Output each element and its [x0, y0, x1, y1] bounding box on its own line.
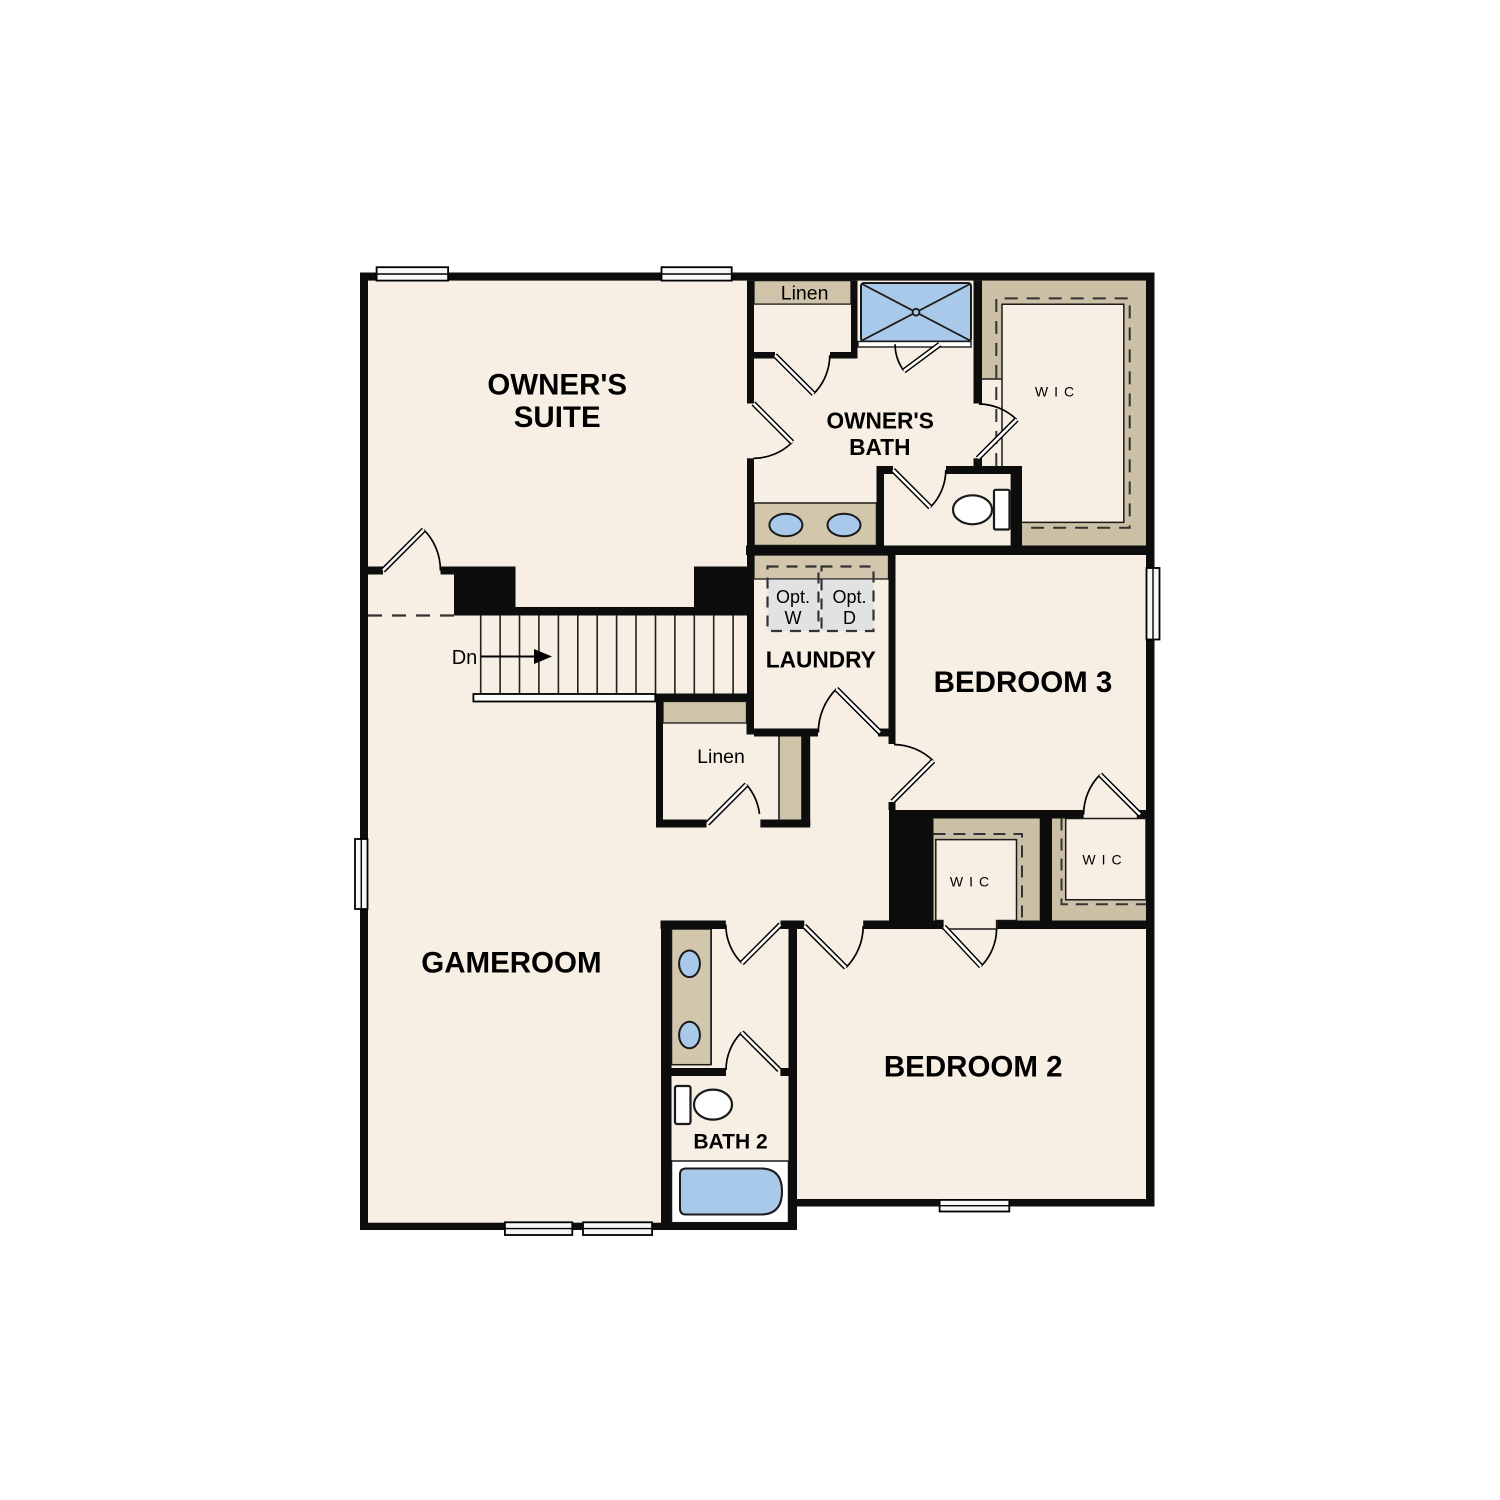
svg-text:W: W — [785, 608, 802, 628]
svg-text:OWNER'S: OWNER'S — [826, 408, 934, 434]
svg-text:BEDROOM 3: BEDROOM 3 — [934, 666, 1113, 699]
svg-text:BATH: BATH — [849, 434, 910, 460]
svg-text:BEDROOM 2: BEDROOM 2 — [884, 1051, 1063, 1084]
svg-text:WIC: WIC — [1035, 384, 1080, 400]
svg-text:Opt.: Opt. — [832, 587, 866, 607]
svg-text:BATH 2: BATH 2 — [693, 1131, 767, 1154]
svg-text:LAUNDRY: LAUNDRY — [766, 647, 876, 673]
svg-text:OWNER'S: OWNER'S — [487, 369, 627, 402]
svg-text:D: D — [843, 608, 856, 628]
svg-text:Linen: Linen — [697, 746, 745, 768]
svg-text:Dn: Dn — [452, 647, 478, 669]
svg-text:Opt.: Opt. — [776, 587, 810, 607]
svg-text:WIC: WIC — [950, 874, 995, 890]
svg-text:Linen: Linen — [781, 283, 829, 305]
svg-text:WIC: WIC — [1082, 852, 1127, 868]
svg-text:SUITE: SUITE — [514, 401, 601, 434]
svg-text:GAMEROOM: GAMEROOM — [421, 947, 601, 980]
